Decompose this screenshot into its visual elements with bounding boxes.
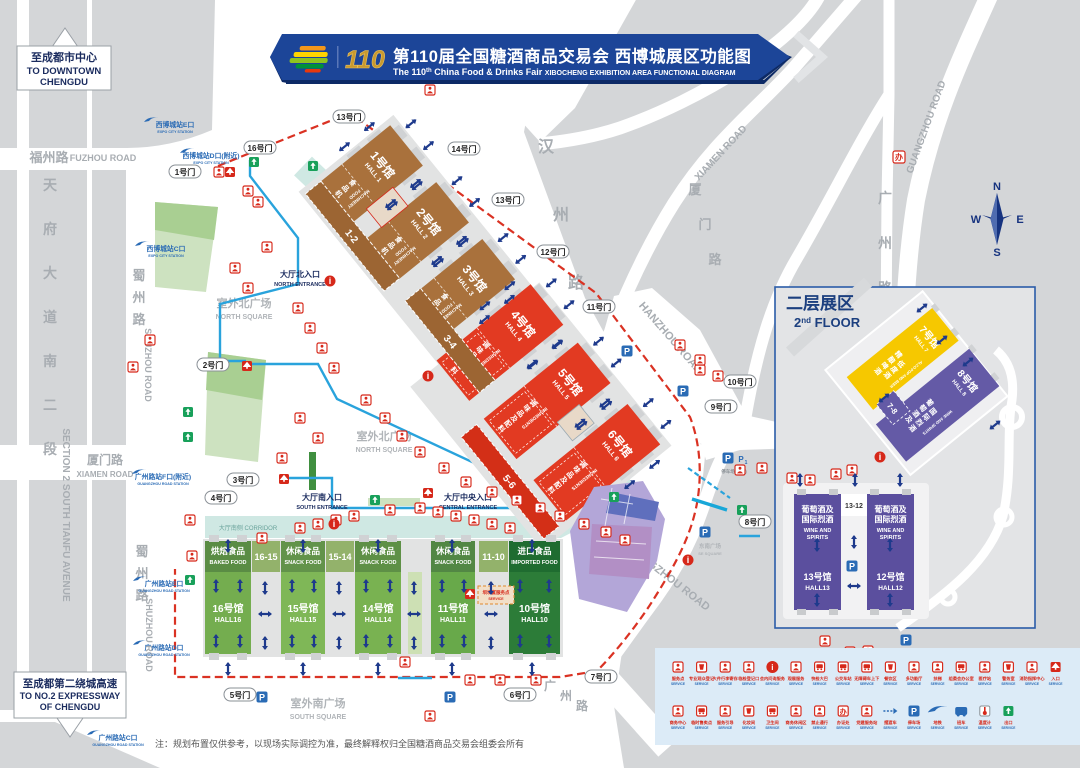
svg-text:TO NO.2 EXPRESSWAY: TO NO.2 EXPRESSWAY	[20, 691, 121, 701]
svg-text:SERVICE: SERVICE	[1001, 726, 1015, 730]
svg-text:医疗站: 医疗站	[979, 675, 992, 682]
svg-text:SERVICE: SERVICE	[907, 682, 921, 686]
svg-text:注：规划布置仅供参考，以现场实际调控为准，最终解释权归全国糖: 注：规划布置仅供参考，以现场实际调控为准，最终解释权归全国糖酒商品交易会组委会所…	[155, 738, 524, 749]
svg-text:110: 110	[345, 46, 385, 74]
svg-text:SERVICE: SERVICE	[883, 726, 897, 730]
svg-text:东南广场: 东南广场	[699, 542, 722, 550]
svg-text:西博城站E口: 西博城站E口	[156, 120, 195, 129]
svg-text:广州路站C口: 广州路站C口	[99, 733, 138, 742]
svg-text:进口食品: 进口食品	[517, 546, 552, 556]
svg-text:西博城站D口(附近): 西博城站D口(附近)	[182, 151, 239, 160]
svg-text:广州路站F口(附近): 广州路站F口(附近)	[135, 472, 191, 481]
svg-text:12号门: 12号门	[541, 247, 566, 257]
svg-text:W: W	[971, 214, 982, 226]
svg-text:SERVICE: SERVICE	[695, 682, 709, 686]
svg-text:广: 广	[544, 678, 556, 693]
svg-text:SOUTH SQUARE: SOUTH SQUARE	[290, 714, 347, 721]
svg-text:NORTH SQUARE: NORTH SQUARE	[216, 314, 273, 321]
svg-text:路: 路	[576, 698, 589, 713]
svg-text:化妆间: 化妆间	[743, 719, 756, 726]
svg-text:SERVICE: SERVICE	[813, 726, 827, 730]
svg-text:厦: 厦	[688, 182, 702, 197]
svg-text:扶梯: 扶梯	[933, 675, 942, 682]
svg-text:快检大巴: 快检大巴	[811, 675, 829, 682]
svg-text:禁止通行: 禁止通行	[810, 719, 829, 726]
svg-text:坝坝宴服务点: 坝坝宴服务点	[483, 589, 510, 596]
svg-text:GUANGZHOU ROAD STATION: GUANGZHOU ROAD STATION	[137, 482, 189, 486]
svg-text:HALL14: HALL14	[365, 617, 392, 624]
svg-text:SNACK FOOD: SNACK FOOD	[435, 560, 472, 566]
svg-text:EXPO CITY STATION: EXPO CITY STATION	[157, 130, 193, 134]
svg-text:SERVICE: SERVICE	[978, 726, 992, 730]
svg-text:路: 路	[708, 252, 722, 267]
svg-text:南: 南	[43, 353, 57, 369]
svg-text:NORTH SQUARE: NORTH SQUARE	[356, 447, 413, 454]
svg-text:会内问询服务: 会内问询服务	[760, 675, 786, 682]
svg-text:The 110th China Food & Drinks: The 110th China Food & Drinks Fair XIBOC…	[393, 67, 736, 77]
svg-text:二层展区: 二层展区	[786, 294, 854, 313]
svg-text:办证处: 办证处	[837, 719, 850, 726]
svg-text:EXPO CITY STATION: EXPO CITY STATION	[193, 161, 229, 165]
svg-text:15号馆: 15号馆	[287, 602, 318, 615]
svg-text:BAKED FOOD: BAKED FOOD	[210, 560, 247, 566]
svg-text:SERVICE: SERVICE	[765, 726, 779, 730]
svg-text:无障碍车上下: 无障碍车上下	[853, 675, 880, 682]
svg-text:2号门: 2号门	[203, 360, 223, 370]
svg-text:葡萄酒及: 葡萄酒及	[801, 504, 835, 514]
svg-text:西博城站C口: 西博城站C口	[147, 244, 186, 253]
svg-text:TO DOWNTOWN: TO DOWNTOWN	[27, 66, 102, 77]
svg-text:13号门: 13号门	[496, 195, 521, 205]
svg-text:SERVICE: SERVICE	[860, 726, 874, 730]
svg-text:5号门: 5号门	[230, 690, 250, 700]
svg-text:11号门: 11号门	[587, 302, 611, 312]
svg-text:13号门: 13号门	[337, 112, 362, 122]
svg-text:大件行李寄存: 大件行李寄存	[713, 675, 739, 682]
svg-text:15-14: 15-14	[328, 552, 351, 562]
svg-text:出口: 出口	[1004, 719, 1012, 726]
svg-text:班车: 班车	[957, 719, 966, 726]
svg-text:16号馆: 16号馆	[212, 602, 243, 615]
svg-text:专业观众登记: 专业观众登记	[689, 675, 715, 682]
svg-text:大厅南侧 CORRIDOR: 大厅南侧 CORRIDOR	[219, 524, 278, 532]
svg-text:N: N	[993, 181, 1001, 193]
svg-text:CENTRAL ENTRANCE: CENTRAL ENTRANCE	[439, 505, 498, 511]
svg-text:餐饮区: 餐饮区	[883, 675, 897, 682]
svg-text:i: i	[771, 663, 773, 672]
svg-text:地铁: 地铁	[933, 719, 942, 726]
svg-text:多功能厅: 多功能厅	[906, 675, 924, 682]
svg-text:国际烈酒: 国际烈酒	[875, 514, 907, 524]
svg-text:IMPORTED FOOD: IMPORTED FOOD	[511, 560, 557, 566]
svg-text:州: 州	[552, 206, 569, 224]
svg-text:7号门: 7号门	[591, 672, 611, 682]
svg-text:13号馆: 13号馆	[803, 571, 831, 582]
svg-text:HALL10: HALL10	[521, 617, 548, 624]
svg-text:州: 州	[559, 689, 572, 703]
svg-text:福州路: 福州路	[28, 150, 69, 165]
svg-text:HALL15: HALL15	[290, 617, 317, 624]
svg-text:16-15: 16-15	[254, 552, 277, 562]
svg-text:NORTH ENTRANCE: NORTH ENTRANCE	[274, 282, 326, 288]
svg-text:11-10: 11-10	[482, 552, 505, 562]
svg-text:GUANGZHOU ROAD STATION: GUANGZHOU ROAD STATION	[92, 743, 144, 747]
svg-text:二: 二	[43, 397, 57, 413]
svg-text:党建服务站: 党建服务站	[856, 719, 878, 726]
svg-text:SERVICE: SERVICE	[813, 682, 827, 686]
svg-text:州: 州	[877, 235, 892, 251]
svg-text:HALL16: HALL16	[215, 617, 242, 624]
svg-text:广州路站E口: 广州路站E口	[145, 579, 184, 588]
svg-text:蜀: 蜀	[135, 544, 148, 559]
svg-text:SHUZHOU ROAD: SHUZHOU ROAD	[144, 598, 154, 672]
svg-text:SERVICE: SERVICE	[860, 682, 874, 686]
svg-text:E: E	[1016, 214, 1023, 226]
svg-text:10号门: 10号门	[728, 377, 753, 387]
svg-text:摆渡车: 摆渡车	[884, 719, 897, 726]
svg-text:SERVICE: SERVICE	[931, 682, 945, 686]
svg-text:国际烈酒: 国际烈酒	[802, 514, 834, 524]
svg-text:临时售卖点: 临时售卖点	[691, 719, 713, 726]
svg-text:葡萄酒及: 葡萄酒及	[874, 504, 908, 514]
svg-text:12号馆: 12号馆	[876, 571, 904, 582]
svg-text:14号馆: 14号馆	[362, 602, 393, 615]
svg-text:蜀: 蜀	[132, 268, 145, 283]
svg-text:办: 办	[895, 152, 903, 162]
svg-text:门: 门	[698, 217, 711, 232]
svg-text:HALL11: HALL11	[440, 617, 466, 624]
svg-text:SOUTH ENTRANCE: SOUTH ENTRANCE	[296, 505, 348, 511]
svg-text:SNACK FOOD: SNACK FOOD	[285, 560, 322, 566]
svg-text:汉: 汉	[538, 137, 555, 156]
svg-text:HALL13: HALL13	[805, 585, 830, 592]
svg-text:第110届全国糖酒商品交易会 西博城展区功能图: 第110届全国糖酒商品交易会 西博城展区功能图	[393, 46, 752, 66]
svg-text:至成都市中心: 至成都市中心	[31, 50, 97, 64]
svg-text:至成都第二绕城高速: 至成都第二绕城高速	[23, 677, 118, 690]
svg-text:SERVICE: SERVICE	[836, 682, 850, 686]
svg-text:WINE AND: WINE AND	[804, 528, 832, 534]
svg-text:大厅中央入口: 大厅中央入口	[444, 492, 492, 502]
svg-text:SERVICE: SERVICE	[671, 726, 685, 730]
svg-text:停车场: 停车场	[908, 719, 921, 726]
svg-text:公交车站: 公交车站	[835, 675, 853, 682]
svg-text:10号馆: 10号馆	[519, 602, 550, 615]
svg-text:GUANGZHOU ROAD STATION: GUANGZHOU ROAD STATION	[138, 653, 190, 657]
svg-text:广州路站D口: 广州路站D口	[145, 643, 184, 652]
svg-text:路: 路	[132, 312, 146, 327]
svg-text:SE SQUARE: SE SQUARE	[698, 551, 722, 556]
svg-text:卫生间: 卫生间	[766, 719, 779, 726]
svg-text:WINE AND: WINE AND	[877, 528, 905, 534]
svg-text:大厅南入口: 大厅南入口	[302, 492, 342, 502]
svg-text:SERVICE: SERVICE	[954, 726, 968, 730]
svg-text:16号门: 16号门	[248, 143, 273, 153]
svg-text:消防指挥中心: 消防指挥中心	[1019, 675, 1045, 682]
svg-text:SERVICE: SERVICE	[742, 682, 756, 686]
svg-text:服务引导: 服务引导	[717, 719, 735, 726]
svg-text:SERVICE: SERVICE	[765, 682, 779, 686]
svg-text:SERVICE: SERVICE	[695, 726, 709, 730]
svg-text:SERVICE: SERVICE	[718, 726, 732, 730]
svg-text:SERVICE: SERVICE	[1025, 682, 1039, 686]
svg-text:办: 办	[840, 707, 847, 716]
svg-text:GUANGZHOU ROAD STATION: GUANGZHOU ROAD STATION	[138, 589, 190, 593]
svg-text:4号门: 4号门	[211, 493, 231, 503]
svg-text:OF CHENGDU: OF CHENGDU	[40, 702, 101, 712]
svg-text:SERVICE: SERVICE	[883, 682, 897, 686]
svg-text:CHENGDU: CHENGDU	[40, 77, 88, 88]
svg-text:大厅北入口: 大厅北入口	[280, 269, 320, 279]
svg-text:1号门: 1号门	[175, 167, 195, 177]
svg-text:14号门: 14号门	[452, 144, 477, 154]
svg-text:3号门: 3号门	[233, 475, 253, 485]
svg-text:6号门: 6号门	[510, 690, 530, 700]
svg-text:SERVICE: SERVICE	[789, 726, 803, 730]
svg-text:SERVICE: SERVICE	[488, 597, 504, 601]
svg-text:SERVICE: SERVICE	[836, 726, 850, 730]
svg-text:HALL12: HALL12	[878, 585, 903, 592]
svg-text:段: 段	[43, 441, 57, 457]
svg-text:道: 道	[43, 309, 57, 325]
svg-text:厦门路: 厦门路	[87, 452, 124, 467]
svg-text:13-12: 13-12	[845, 503, 863, 510]
svg-text:SERVICE: SERVICE	[1001, 682, 1015, 686]
svg-text:XIAMEN ROAD: XIAMEN ROAD	[77, 470, 134, 479]
svg-text:9号门: 9号门	[711, 402, 731, 412]
svg-text:SERVICE: SERVICE	[789, 682, 803, 686]
svg-text:SERVICE: SERVICE	[671, 682, 685, 686]
svg-text:广: 广	[878, 190, 892, 206]
svg-text:商务中心: 商务中心	[670, 719, 688, 726]
svg-text:SERVICE: SERVICE	[978, 682, 992, 686]
svg-text:SERVICE: SERVICE	[954, 682, 968, 686]
svg-text:府: 府	[43, 221, 57, 237]
svg-text:P: P	[738, 455, 744, 464]
svg-text:S: S	[993, 247, 1000, 259]
svg-text:SERVICE: SERVICE	[931, 726, 945, 730]
svg-text:温度计: 温度计	[979, 719, 992, 726]
svg-text:服务点: 服务点	[672, 675, 685, 682]
svg-text:SNACK FOOD: SNACK FOOD	[360, 560, 397, 566]
svg-text:观展服务: 观展服务	[788, 675, 806, 682]
svg-text:SERVICE: SERVICE	[718, 682, 732, 686]
svg-text:FUZHOU ROAD: FUZHOU ROAD	[70, 153, 137, 163]
svg-text:SERVICE: SERVICE	[742, 726, 756, 730]
svg-text:室外南广场: 室外南广场	[291, 696, 346, 710]
svg-text:州: 州	[131, 290, 145, 305]
svg-text:EXPO CITY STATION: EXPO CITY STATION	[148, 254, 184, 258]
svg-text:SECTION 2 SOUTH TIANFU AVENUE: SECTION 2 SOUTH TIANFU AVENUE	[60, 428, 71, 602]
svg-text:11号馆: 11号馆	[438, 602, 469, 615]
svg-text:天: 天	[43, 177, 58, 193]
svg-text:组委会办公室: 组委会办公室	[949, 675, 975, 682]
svg-text:商务休闲区: 商务休闲区	[786, 719, 808, 726]
svg-text:SERVICE: SERVICE	[1049, 682, 1063, 686]
svg-text:大: 大	[43, 265, 57, 281]
svg-text:8号门: 8号门	[745, 517, 765, 527]
svg-text:SERVICE: SERVICE	[907, 726, 921, 730]
svg-text:临检登记口: 临检登记口	[738, 675, 759, 682]
svg-text:警务室: 警务室	[1002, 675, 1015, 682]
